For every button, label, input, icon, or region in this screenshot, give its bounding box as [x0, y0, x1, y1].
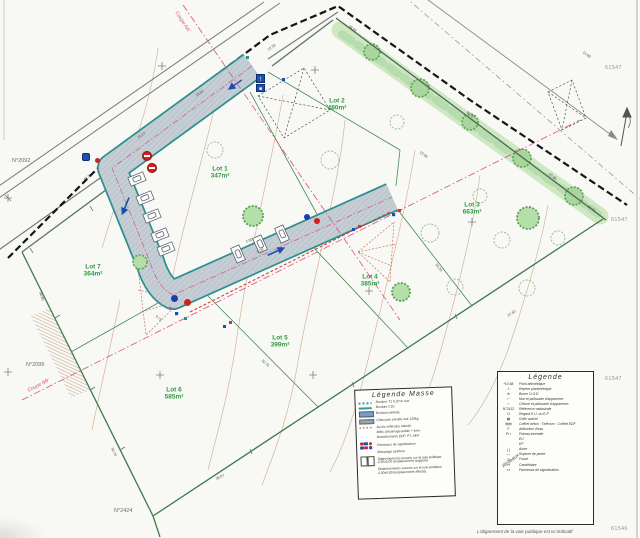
access-road [112, 66, 392, 312]
street-sign-icon [82, 153, 90, 161]
legend-item-label: Fossé [519, 458, 528, 462]
legend-symbol: ▤▤ [501, 423, 516, 426]
legend-swatch [359, 412, 373, 418]
margin-number: 61547 [605, 376, 622, 382]
no-entry-sign-icon [147, 163, 157, 173]
legend-symbol: F [501, 428, 516, 431]
blue-marker-icon [304, 214, 310, 220]
legend-item-label: Panneaux de signalisation [519, 469, 559, 473]
legend-item: Pi •Poteau incendie [501, 433, 590, 437]
legend-item: ORegard E.U. ou E.P. [501, 413, 590, 417]
legend-item: -¤Candélabre [501, 464, 590, 468]
legend-symbol: O [501, 413, 516, 416]
blue-marker-icon [171, 295, 178, 302]
north-arrow-icon [621, 108, 631, 146]
traffic-signs-icon [360, 441, 374, 450]
no-entry-sign-icon [142, 151, 152, 161]
margin-number: 61547 [611, 217, 628, 223]
legend-item-label: Bordure parking [376, 412, 400, 416]
legend-item: ▤▤Coffret béton · Télécom · Coffret EDF [501, 423, 590, 427]
scan-shadow [0, 516, 46, 538]
parcel-number: N°2095 [26, 362, 44, 368]
footnote: L'alignement de la voie publique est ici… [477, 529, 572, 534]
legend-item-label: Candélabre [519, 464, 537, 468]
legend-item-label: Branchements EDF, PT, AEP [377, 435, 419, 440]
legend-symbol: ⊕ [501, 393, 516, 396]
legend-symbol: ×× [501, 469, 516, 472]
legend-masse-rows: Bordure T1 0,20 m vueBordure CS1Bordure … [359, 398, 452, 475]
legend-item: ××Panneaux de signalisation [501, 469, 590, 473]
lot-label: Lot 2480m² [328, 98, 347, 113]
lot-label: Lot 1347m² [211, 166, 230, 181]
legend-item: FAdduction d'eau [501, 428, 590, 432]
legend-item-label: Panneaux de signalisation [377, 442, 416, 447]
parking-bays-icon [360, 457, 374, 467]
legend-item: EP [501, 443, 590, 447]
legend-masse-item: Stationnements ouverts sur la voie publi… [361, 465, 451, 475]
legend-item-label: Marquage peinture [377, 450, 405, 455]
legend-item-label: Stationnements ouverts sur la voie publi… [378, 455, 451, 465]
legend-box: Légende *10.58Point altimétrique-+-Repèr… [497, 371, 594, 525]
legend-swatch [359, 407, 373, 409]
lot-label: Lot 6585m² [165, 387, 184, 402]
legend-item: EU [501, 438, 590, 442]
red-marker-icon [95, 158, 100, 163]
legend-item: ( )Arbre [501, 448, 590, 452]
legend-item: -+-Repère planimétrique [501, 388, 590, 392]
legend-swatch [359, 402, 373, 404]
legend-symbol: ▦ [501, 418, 516, 421]
legend-symbol: ⌐· [501, 403, 516, 406]
legend-symbol: ( ) [501, 449, 516, 452]
lot-label: Lot 4385m² [361, 274, 380, 289]
legend-swatch [359, 427, 373, 429]
parcel-number: N°2092 [12, 158, 30, 164]
margin-number: 61546 [611, 526, 628, 532]
lot-label: Lot 5399m² [271, 335, 290, 350]
legend-masse-box: Légende Masse Bordure T1 0,20 m vueBordu… [354, 386, 456, 499]
survey-crosses [4, 62, 476, 379]
legend-symbol: *10.58 [501, 383, 516, 386]
lot-label: Lot 3663m² [463, 202, 482, 217]
legend-item-label: Chaussée enrobé noir 120kg [376, 418, 418, 423]
margin-number: 61547 [605, 65, 622, 71]
section-lines [22, 5, 580, 400]
legend-item-label: Bordure CS1 [376, 406, 395, 410]
legend-item-label: Stationnements ouverts sur la voie publi… [378, 465, 451, 475]
legend-symbol: N°2412 [501, 408, 516, 411]
red-marker-icon [314, 218, 320, 224]
parcel-number: N°2424 [114, 508, 132, 514]
legend-swatch [359, 419, 373, 425]
legend-symbol: Pi • [501, 433, 516, 436]
lot-label: Lot 7364m² [84, 264, 103, 279]
one-way-sign-icon: ↑ [256, 74, 265, 83]
legend-title: Légende [501, 374, 590, 381]
page-edge-right [636, 0, 638, 538]
legend-symbol: -+- [501, 388, 516, 391]
legend-symbol: ⌐· [501, 398, 516, 401]
blue-sign-icon: ■ [256, 84, 265, 92]
red-marker-icon [184, 299, 191, 306]
